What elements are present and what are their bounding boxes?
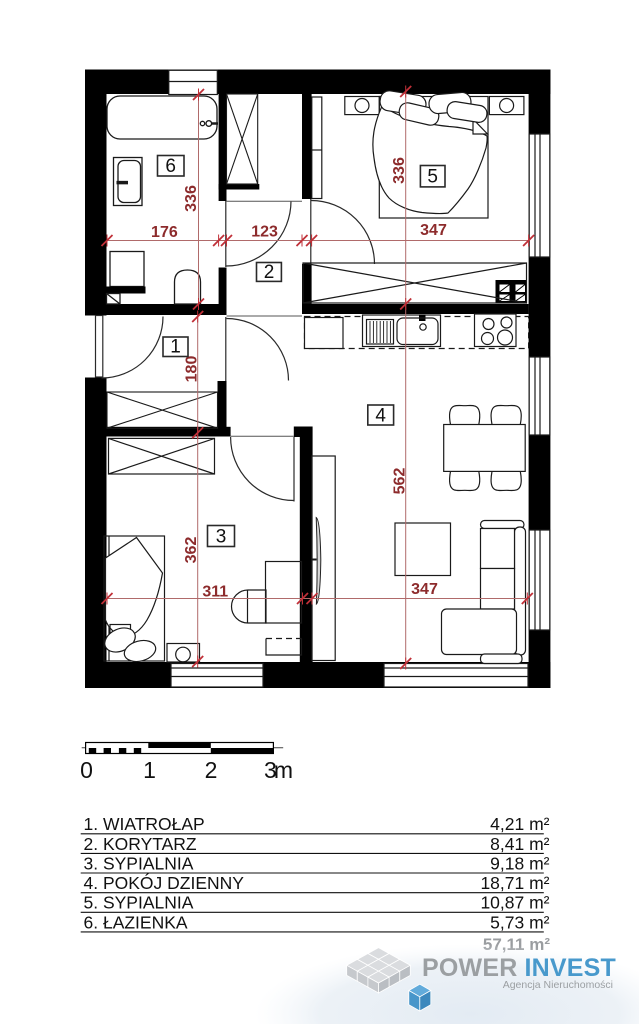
svg-text:3. SYPIALNIA: 3. SYPIALNIA: [84, 853, 194, 873]
svg-text:2: 2: [264, 262, 275, 283]
svg-text:336: 336: [183, 185, 200, 212]
svg-text:5,73 m²: 5,73 m²: [490, 912, 549, 932]
svg-text:3: 3: [216, 527, 227, 548]
svg-text:4. POKÓJ DZIENNY: 4. POKÓJ DZIENNY: [84, 872, 245, 893]
svg-text:347: 347: [420, 222, 447, 239]
svg-text:311: 311: [202, 584, 228, 601]
svg-text:2: 2: [205, 757, 218, 783]
svg-text:10,87 m²: 10,87 m²: [480, 893, 549, 913]
svg-text:1. WIATROŁAP: 1. WIATROŁAP: [84, 814, 205, 834]
svg-text:176: 176: [151, 224, 178, 241]
svg-text:336: 336: [391, 157, 408, 184]
svg-text:9,18 m²: 9,18 m²: [490, 853, 549, 873]
svg-text:4,21 m²: 4,21 m²: [490, 814, 549, 834]
svg-text:123: 123: [251, 224, 278, 241]
svg-text:1: 1: [170, 337, 181, 358]
svg-text:m: m: [274, 757, 293, 783]
svg-text:562: 562: [391, 468, 408, 495]
svg-text:5: 5: [427, 167, 438, 188]
svg-text:2. KORYTARZ: 2. KORYTARZ: [84, 834, 197, 854]
svg-text:180: 180: [184, 356, 201, 383]
svg-text:0: 0: [80, 757, 93, 783]
svg-text:362: 362: [183, 537, 200, 564]
svg-text:1: 1: [143, 757, 156, 783]
svg-text:8,41 m²: 8,41 m²: [490, 834, 549, 854]
svg-text:4: 4: [375, 406, 386, 427]
svg-text:6: 6: [165, 156, 176, 177]
svg-text:347: 347: [411, 581, 438, 598]
svg-text:18,71 m²: 18,71 m²: [480, 873, 549, 893]
svg-text:5. SYPIALNIA: 5. SYPIALNIA: [84, 893, 194, 913]
svg-text:6. ŁAZIENKA: 6. ŁAZIENKA: [84, 912, 188, 932]
svg-text:Agencja Nieruchomości: Agencja Nieruchomości: [503, 979, 613, 991]
